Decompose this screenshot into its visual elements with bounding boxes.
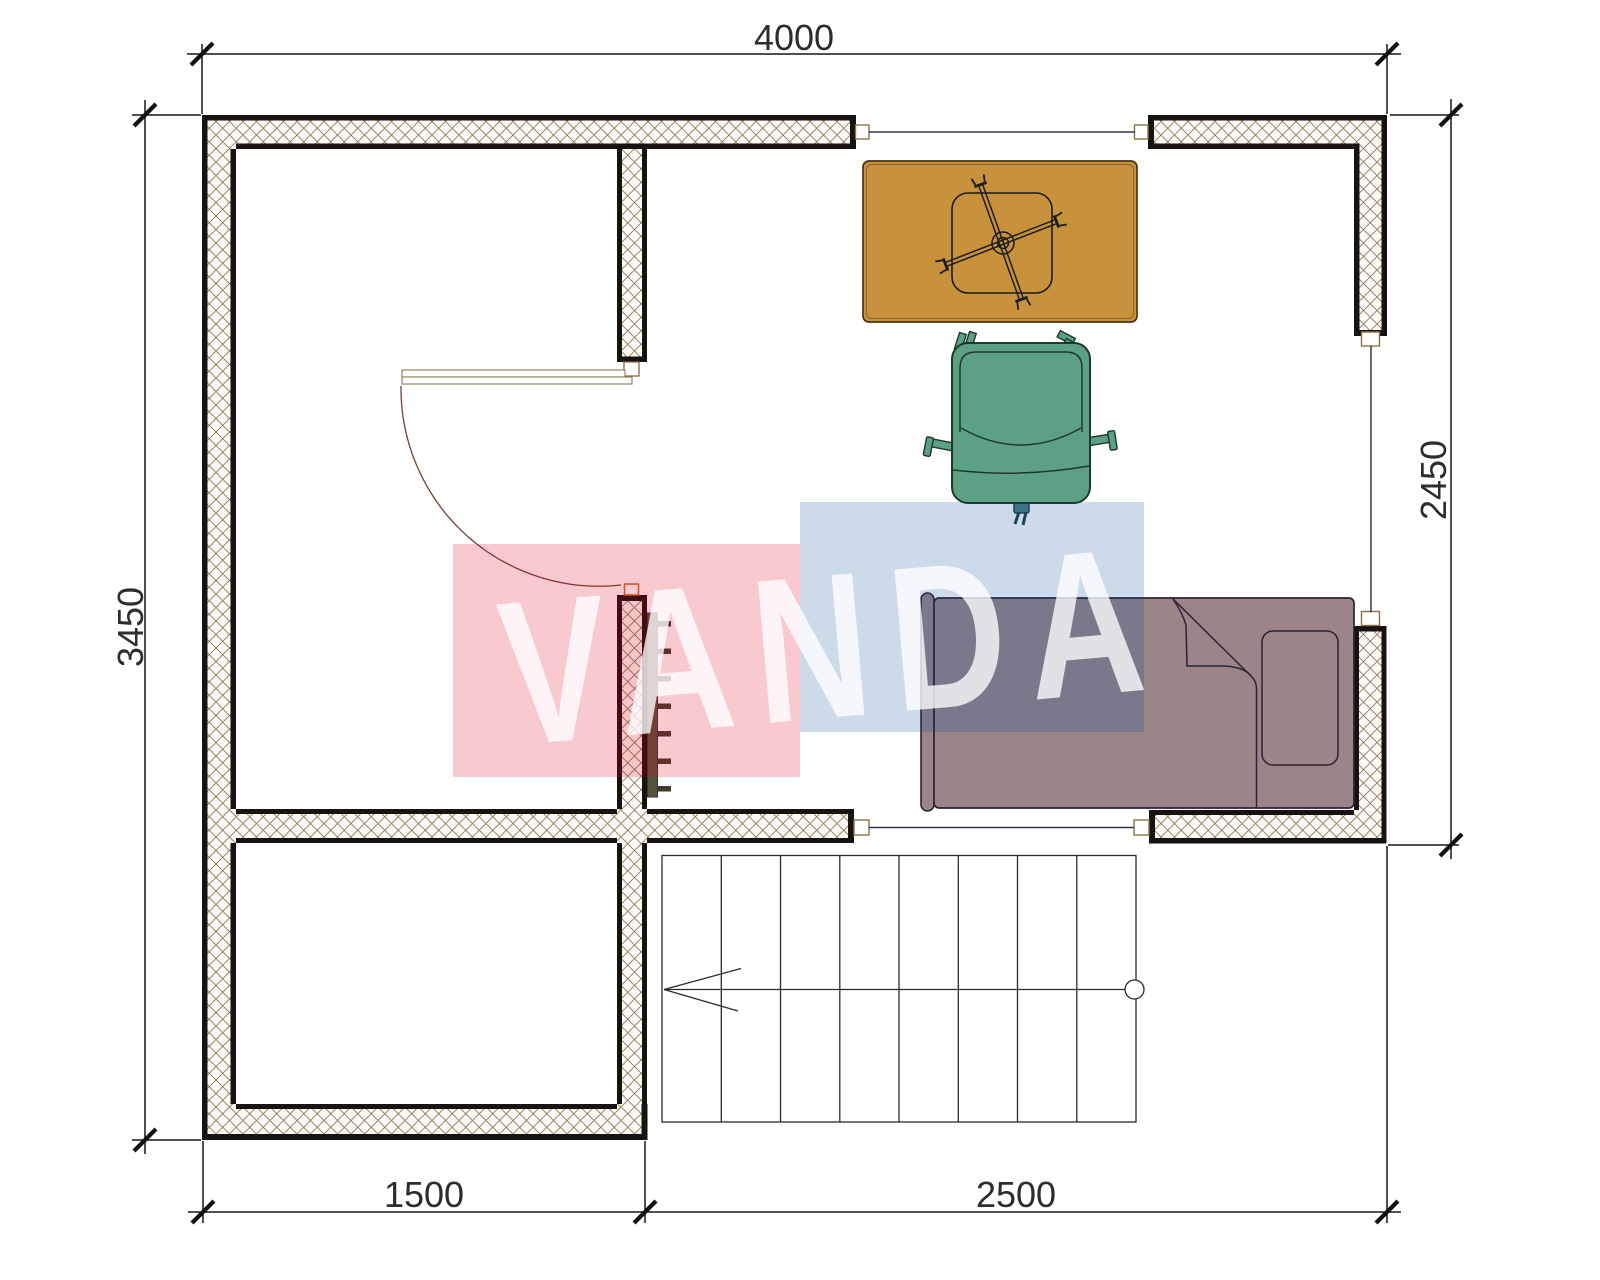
svg-text:3450: 3450 [110,587,151,667]
svg-text:2500: 2500 [976,1174,1056,1215]
svg-text:2450: 2450 [1413,440,1454,520]
svg-text:1500: 1500 [384,1174,464,1215]
svg-text:4000: 4000 [754,17,834,58]
